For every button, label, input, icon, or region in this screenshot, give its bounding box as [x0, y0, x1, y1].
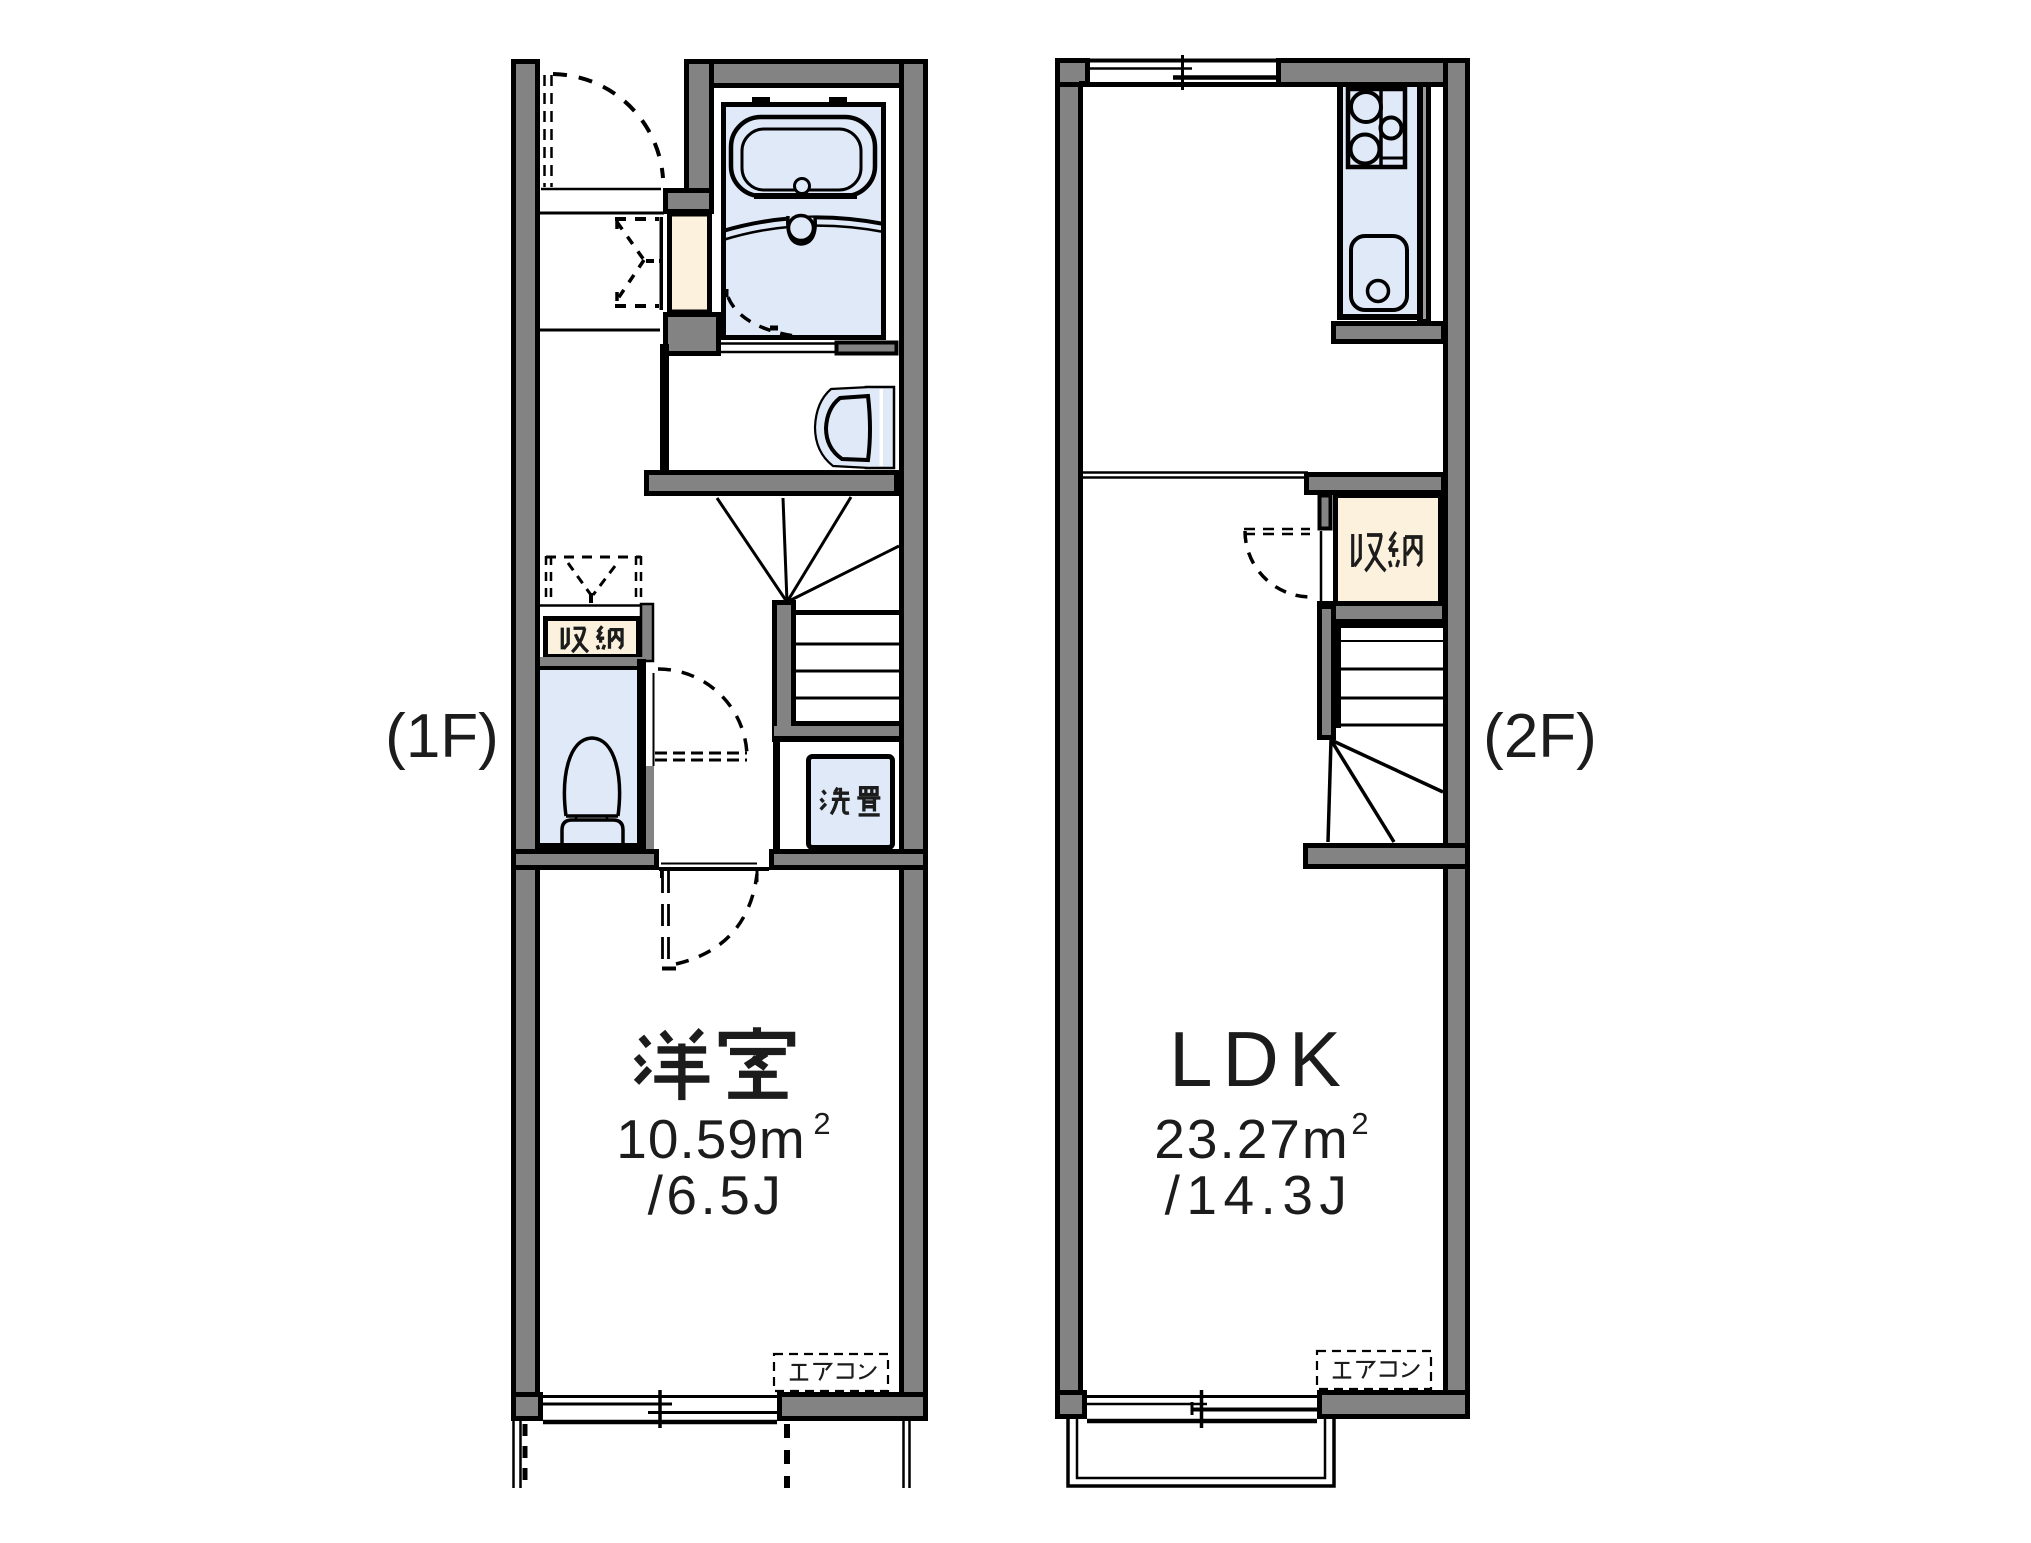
- svg-text:(2F): (2F): [1483, 702, 1597, 771]
- svg-text:/6.5J: /6.5J: [648, 1164, 785, 1226]
- svg-text:(1F): (1F): [385, 702, 499, 771]
- svg-text:2: 2: [813, 1106, 830, 1141]
- svg-text:LDK: LDK: [1169, 1015, 1351, 1103]
- svg-text:10.59m: 10.59m: [616, 1108, 805, 1170]
- svg-text:/14.3J: /14.3J: [1165, 1164, 1354, 1226]
- svg-text:2: 2: [1351, 1106, 1368, 1141]
- svg-text:23.27m: 23.27m: [1154, 1108, 1349, 1170]
